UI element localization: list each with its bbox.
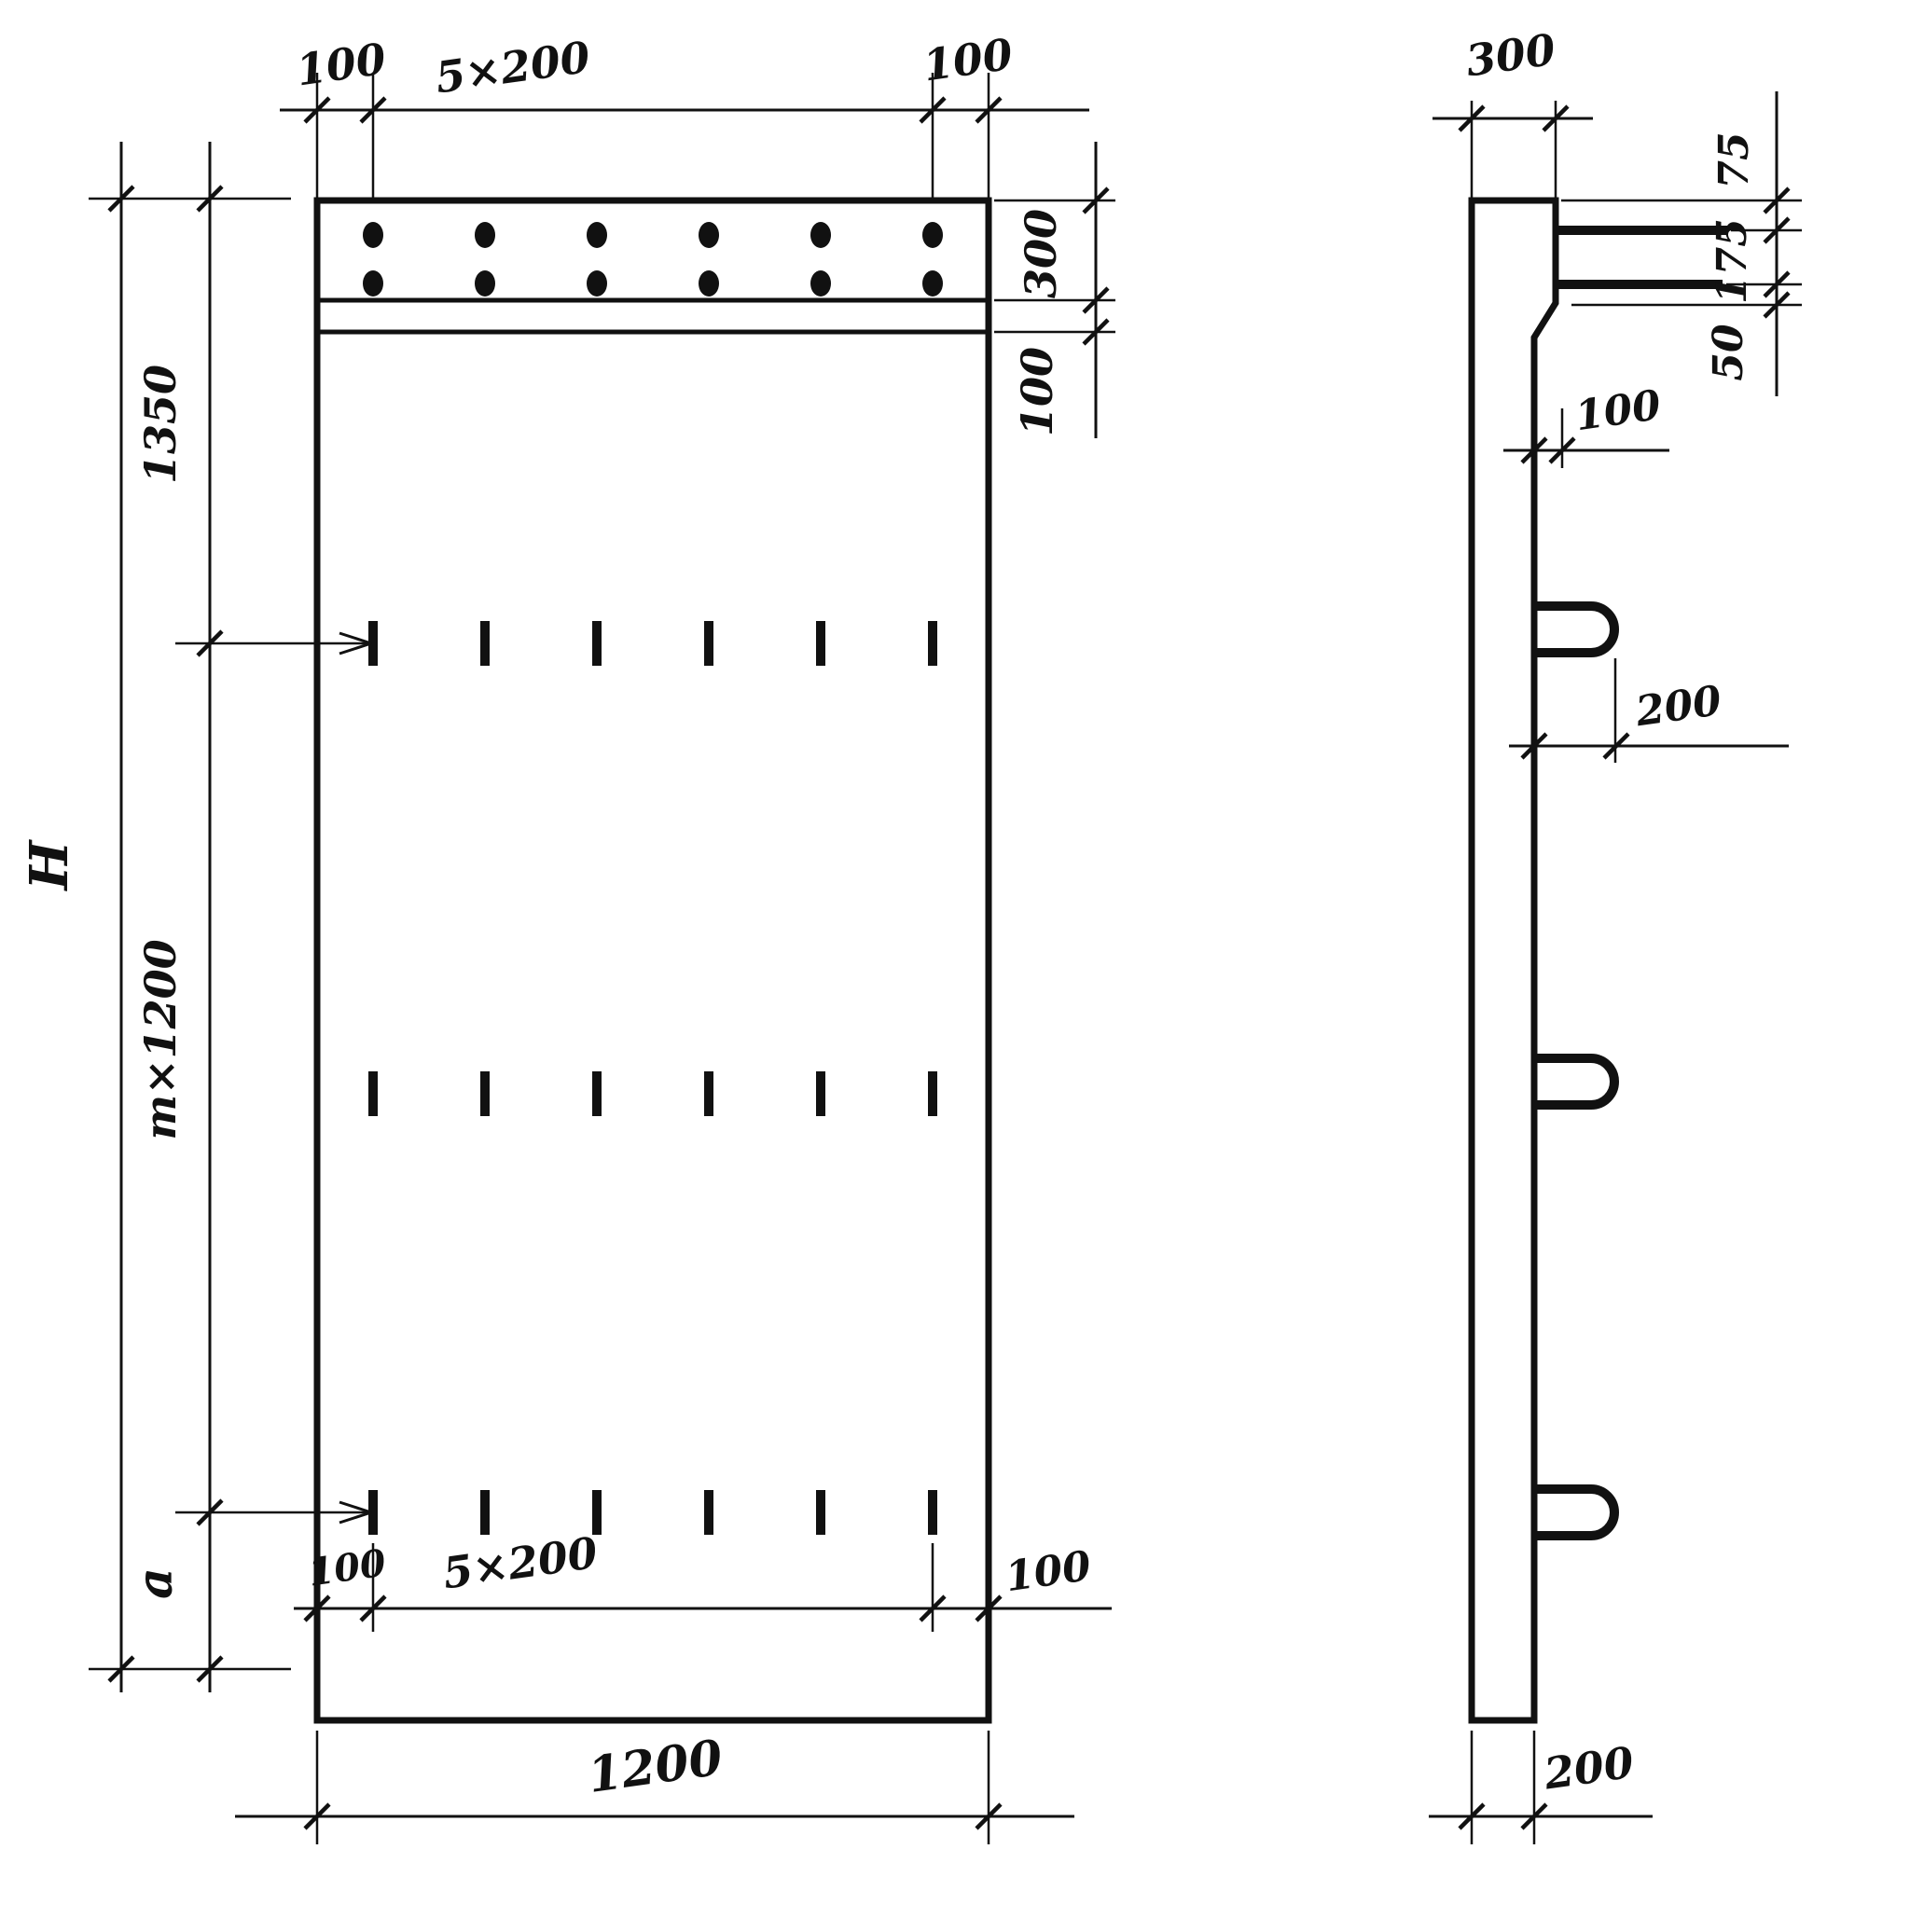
dim-label-left-middle: m×1200: [135, 939, 186, 1139]
front-view: 100 5×200 100 300 100 1350 m×1200 a H 10…: [19, 29, 1115, 1844]
dim-label-top-right: 100: [920, 29, 1016, 91]
top-strip-lines: [317, 300, 989, 332]
dim-label-strip-gap: 100: [1012, 347, 1062, 436]
dim-label-strip-height: 300: [1016, 209, 1066, 298]
panel-drawing: 100 5×200 100 300 100 1350 m×1200 a H 10…: [0, 0, 1910, 1932]
dim-label-hook-offset: 200: [1632, 677, 1724, 736]
side-view: 300 75 175 50 100 200 200: [1429, 24, 1802, 1844]
dim-label-left-bottom: a: [127, 1567, 184, 1599]
dim-label-side-step: 100: [1572, 381, 1664, 440]
dim-label-bottom-center: 5×200: [440, 1527, 601, 1599]
dim-label-side-bottom-width: 200: [1540, 1737, 1637, 1800]
dim-label-top-left: 100: [293, 34, 389, 96]
dim-label-left-top: 1350: [135, 365, 186, 484]
rebar-dashes: [368, 621, 937, 1535]
dim-label-side-right-bottom: 50: [1705, 324, 1752, 381]
dim-label-side-right-middle: 175: [1709, 218, 1756, 304]
technical-drawing-page: 100 5×200 100 300 100 1350 m×1200 a H 10…: [0, 0, 1910, 1932]
anchor-dots: [363, 222, 943, 297]
dim-label-overall-width: 1200: [585, 1729, 727, 1804]
front-panel-outline: [317, 200, 989, 1720]
leader-arrowheads: [339, 633, 371, 1523]
front-dim-ticks: [109, 98, 1108, 1828]
dim-label-side-right-top: 75: [1710, 131, 1758, 188]
dim-label-overall-height: H: [19, 838, 80, 891]
front-dimension-lines: [89, 73, 1115, 1844]
dim-label-bottom-right: 100: [1003, 1542, 1094, 1601]
dim-label-side-top-width: 300: [1462, 24, 1558, 87]
protruding-bars: [1556, 230, 1727, 284]
dim-label-top-center: 5×200: [433, 32, 593, 103]
